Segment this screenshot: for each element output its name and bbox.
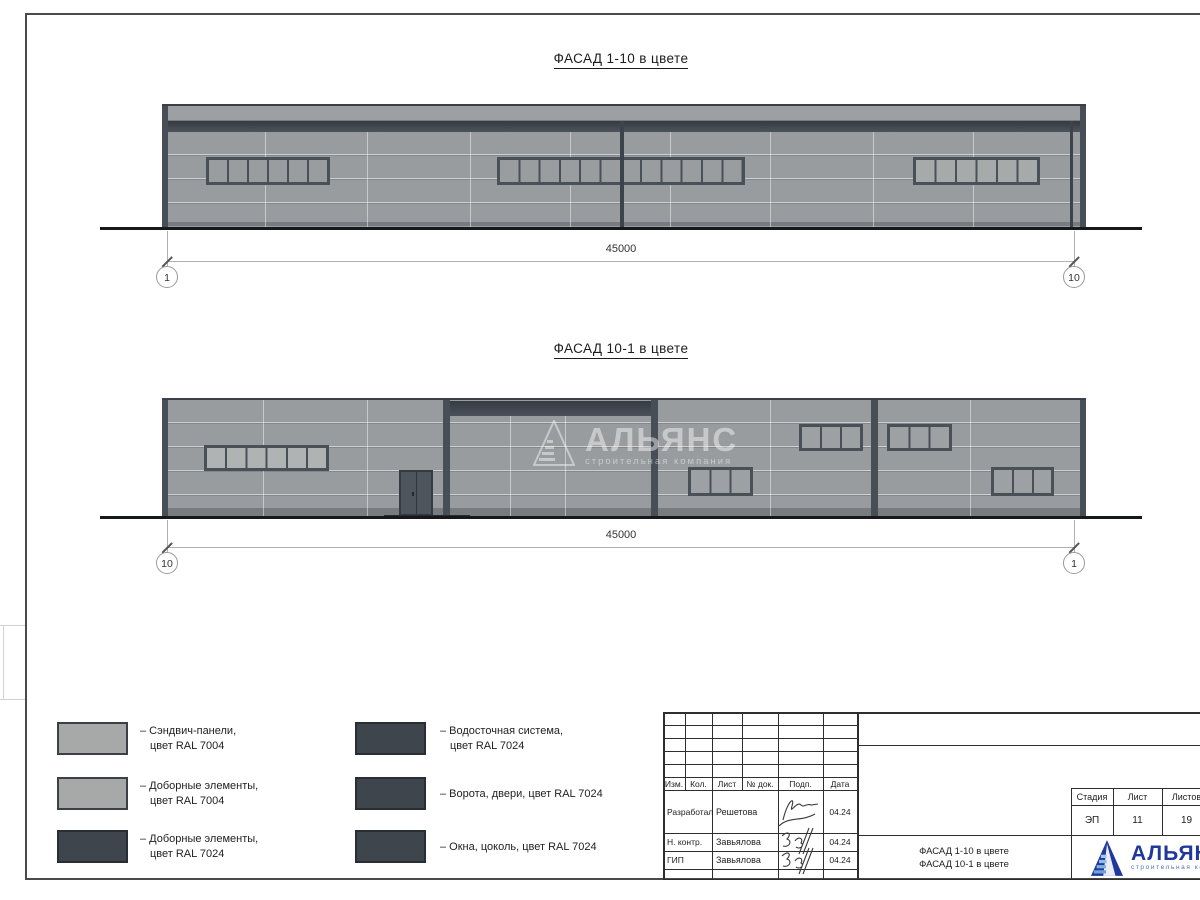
door-leaf-divider [416,472,417,514]
tb-col-kol: Кол. [685,777,712,790]
tb-line [663,751,857,752]
panel-joint [510,416,511,516]
panel-joint [565,416,566,516]
corner-trim [1080,106,1086,229]
dimension-line [167,261,1075,262]
window-low [688,467,753,496]
tb-name: Решетова [712,790,778,833]
frame-left [25,13,27,880]
tb-sheet-header: Лист [1113,788,1162,805]
title-block: Изм. Кол. Лист № док. Подп. Дата Разрабо… [663,712,1200,880]
section-separator [443,400,450,516]
tb-col-list: Лист [712,777,742,790]
gate-header-band [447,401,657,416]
axis-marker-10: 10 [156,552,178,574]
window-high [799,424,863,451]
tb-col-podp: Подп. [778,777,823,790]
window-low [991,467,1054,496]
drawing-sheet: ФАСАД 1-10 в цвете ФАСАД 10-1 в цвете [0,0,1200,900]
axis-marker-10: 10 [1063,266,1085,288]
parapet [162,106,1086,121]
tb-line [663,725,857,726]
tb-stage-value: ЭП [1071,805,1113,835]
margin-mark [0,699,25,700]
legend-label: – Окна, цоколь, цвет RAL 7024 [440,840,597,855]
legend-swatch-ral7024 [57,830,128,863]
legend-label: цвет RAL 7024 [440,739,563,754]
tb-doc-title: ФАСАД 1-10 в цвете ФАСАД 10-1 в цвете [857,835,1071,880]
downspout [620,121,624,229]
panel-joint [873,132,874,229]
extension-line [1074,520,1075,556]
tb-sheets-value: 19 [1162,805,1200,835]
gutter-band [162,121,1086,132]
tb-col-izm: Изм. [663,777,685,790]
legend-item: – Окна, цоколь, цвет RAL 7024 [440,840,597,855]
dimension-line [167,547,1075,548]
tb-name: Завьялова [712,851,778,869]
logo-pyramid-icon [1091,840,1123,876]
legend-item: – Доборные элементы, цвет RAL 7004 [140,779,258,809]
tb-role: Н. контр. [663,833,712,851]
dimension-value: 45000 [521,243,721,255]
tb-name: Завьялова [712,833,778,851]
panel-joint [367,132,368,229]
corner-trim [162,106,168,229]
tb-stage-header: Стадия [1071,788,1113,805]
door-handle [412,492,414,496]
legend-item: – Ворота, двери, цвет RAL 7024 [440,787,603,802]
tb-date: 04.24 [823,851,857,869]
tb-role: ГИП [663,851,712,869]
facade1-drawing [162,104,1086,230]
legend-label: – Ворота, двери, цвет RAL 7024 [440,787,603,802]
legend-label: цвет RAL 7004 [140,794,258,809]
ground-line [100,516,1142,519]
panel-joint [470,132,471,229]
legend-label: – Доборные элементы, [140,779,258,794]
axis-marker-1: 1 [1063,552,1085,574]
axis-marker-1: 1 [156,266,178,288]
legend-label: цвет RAL 7004 [140,739,236,754]
window-strip [206,157,330,185]
legend-label: цвет RAL 7024 [140,847,258,862]
extension-line [167,520,168,556]
legend-swatch-ral7024 [355,722,426,755]
tb-sheet-value: 11 [1113,805,1162,835]
window-strip [913,157,1040,185]
section-separator [651,400,658,516]
panel-joint [970,400,971,516]
window-strip [204,445,329,471]
tb-line [663,712,1200,714]
company-logo: АЛЬЯНС строительная компания [1071,835,1200,880]
legend-label: – Водосточная система, [440,724,563,739]
facade1-title: ФАСАД 1-10 в цвете [431,51,811,69]
tb-line [663,738,857,739]
logo-subtitle: строительная компания [1131,864,1200,871]
legend-label: – Доборные элементы, [140,832,258,847]
tb-line [663,869,857,870]
margin-mark [3,625,4,699]
entrance-door [399,470,433,516]
tb-role: Разработал [663,790,712,833]
legend-swatch-ral7004 [57,722,128,755]
legend-item: – Сэндвич-панели, цвет RAL 7004 [140,724,236,754]
panel-joint [770,400,771,516]
section-separator [871,400,878,516]
corner-trim [162,400,168,516]
corner-trim [1080,400,1086,516]
tb-sheets-header: Листов [1162,788,1200,805]
frame-top [25,13,1200,15]
tb-line [663,764,857,765]
dimension-value: 45000 [521,529,721,541]
panel-joint [770,132,771,229]
ground-line [100,227,1142,230]
tb-date: 04.24 [823,833,857,851]
legend-swatch-ral7004 [57,777,128,810]
facade2-drawing [162,398,1086,520]
plinth [162,508,1086,516]
tb-col-data: Дата [823,777,857,790]
tb-date: 04.24 [823,790,857,833]
legend-item: – Водосточная система, цвет RAL 7024 [440,724,563,754]
tb-line [857,745,1200,746]
window-high [887,424,952,451]
facade2-title: ФАСАД 10-1 в цвете [431,341,811,359]
tb-doc-title-line2: ФАСАД 10-1 в цвете [919,858,1009,871]
legend-swatch-ral7024 [355,777,426,810]
panel-joint [367,400,368,516]
tb-col-doc: № док. [742,777,778,790]
signature [775,844,821,876]
legend-swatch-ral7024 [355,830,426,863]
tb-doc-title-line1: ФАСАД 1-10 в цвете [919,845,1009,858]
legend-item: – Доборные элементы, цвет RAL 7024 [140,832,258,862]
downspout [1070,121,1073,229]
legend-label: – Сэндвич-панели, [140,724,236,739]
logo-name: АЛЬЯНС [1131,844,1200,864]
